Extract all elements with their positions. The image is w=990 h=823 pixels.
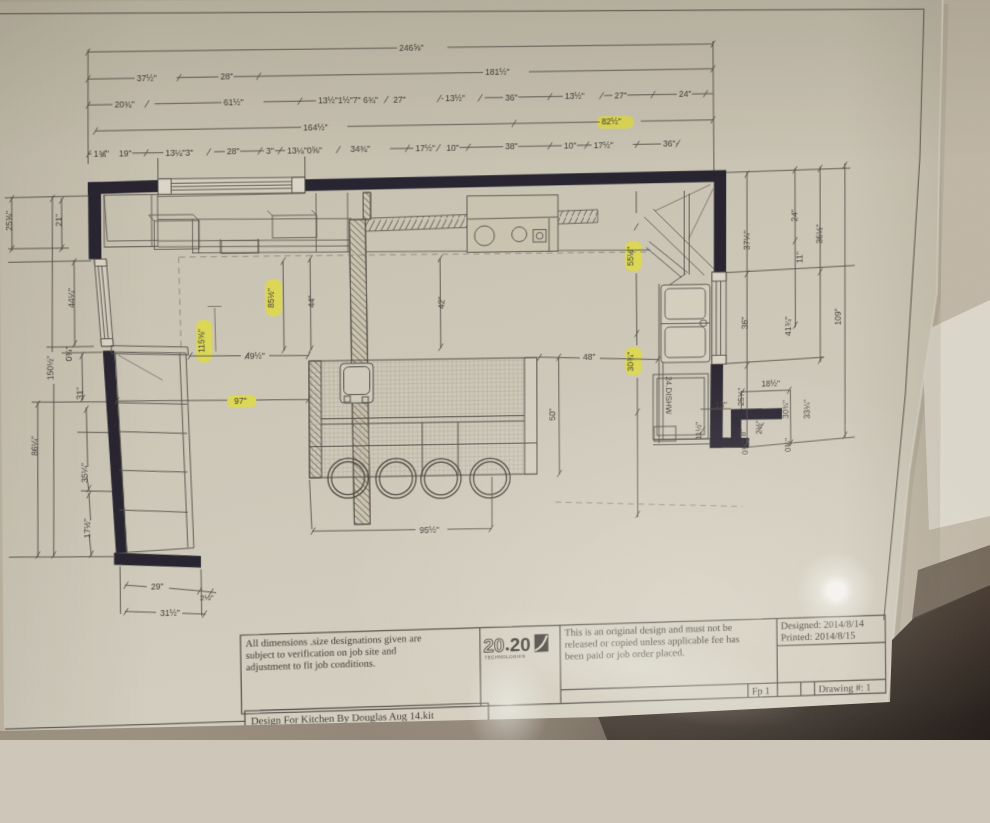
svg-text:25¼": 25¼" [736, 387, 746, 406]
svg-text:8": 8" [738, 429, 748, 437]
svg-text:25⅜": 25⅜" [4, 211, 14, 231]
svg-text:31½": 31½" [160, 608, 180, 618]
svg-text:13¼"0⅝": 13¼"0⅝" [287, 145, 322, 155]
svg-text:2½": 2½" [754, 420, 764, 434]
svg-text:44": 44" [306, 295, 316, 308]
svg-text:24": 24" [790, 209, 800, 222]
svg-text:150½": 150½" [45, 356, 55, 381]
svg-text:109": 109" [833, 308, 843, 325]
svg-text:48": 48" [583, 352, 595, 362]
svg-text:49½": 49½" [245, 351, 265, 361]
svg-text:28": 28" [220, 72, 233, 82]
svg-text:36": 36" [663, 139, 675, 149]
svg-text:41¾": 41¾" [783, 317, 793, 337]
svg-text:37½": 37½" [137, 73, 157, 83]
svg-text:37¼": 37¼" [742, 231, 752, 251]
svg-text:115⅝": 115⅝" [196, 329, 206, 353]
svg-text:2½": 2½" [200, 593, 214, 602]
svg-text:29": 29" [151, 582, 164, 592]
svg-text:20: 20 [510, 635, 531, 656]
svg-text:27": 27" [393, 94, 406, 104]
svg-text:38": 38" [505, 142, 518, 152]
svg-text:97": 97" [234, 396, 247, 406]
svg-text:28": 28" [227, 146, 240, 156]
svg-text:33¼": 33¼" [802, 399, 812, 419]
svg-text:0¾": 0¾" [740, 441, 750, 455]
svg-text:13½"1½"7" 6¾": 13½"1½"7" 6¾" [318, 95, 378, 105]
svg-text:17½": 17½" [415, 143, 435, 153]
svg-text:86¼": 86¼" [29, 436, 39, 456]
svg-text:3": 3" [266, 146, 274, 156]
svg-text:11": 11" [795, 251, 805, 263]
svg-text:164½": 164½" [303, 122, 328, 132]
svg-text:35¼": 35¼" [79, 463, 89, 483]
svg-text:85½": 85½" [266, 288, 276, 308]
svg-text:246⅝": 246⅝" [399, 43, 424, 53]
svg-text:1¾": 1¾" [94, 149, 109, 159]
svg-text:13": 13" [715, 400, 727, 410]
svg-text:20¾": 20¾" [115, 99, 135, 109]
svg-text:44¼": 44¼" [66, 288, 76, 308]
svg-text:13½": 13½" [445, 93, 465, 103]
svg-text:0¾": 0¾" [64, 346, 74, 361]
svg-text:13¼"3": 13¼"3" [165, 147, 193, 157]
svg-text:82½": 82½" [602, 117, 622, 127]
svg-text:0¾": 0¾" [783, 438, 793, 452]
svg-text:13½": 13½" [565, 91, 585, 101]
svg-text:17½": 17½" [82, 519, 92, 539]
svg-text:36": 36" [505, 92, 518, 102]
svg-text:21": 21" [54, 214, 64, 227]
svg-text:10": 10" [446, 143, 459, 153]
svg-text:36": 36" [740, 317, 750, 330]
svg-text:30¾": 30¾" [626, 352, 636, 372]
svg-text:24": 24" [679, 89, 691, 99]
svg-text:50": 50" [547, 408, 557, 421]
svg-text:42": 42" [436, 296, 446, 309]
svg-text:34¾": 34¾" [350, 144, 370, 154]
svg-text:17½": 17½" [594, 140, 614, 150]
svg-text:55½": 55½" [625, 246, 635, 266]
svg-text:181½": 181½" [485, 67, 509, 77]
svg-text:36½": 36½" [814, 224, 824, 244]
svg-text:30¾": 30¾" [781, 400, 791, 419]
svg-text:61½": 61½" [224, 97, 244, 107]
svg-text:24.DISHW: 24.DISHW [664, 376, 674, 414]
svg-text:95½": 95½" [420, 525, 440, 535]
svg-text:18½": 18½" [761, 379, 780, 389]
svg-text:27": 27" [614, 90, 626, 100]
svg-text:31": 31" [75, 387, 85, 400]
svg-text:Fp 1: Fp 1 [752, 686, 770, 697]
svg-text:11½": 11½" [694, 422, 704, 440]
svg-text:19": 19" [119, 148, 132, 158]
svg-text:10": 10" [564, 141, 577, 151]
